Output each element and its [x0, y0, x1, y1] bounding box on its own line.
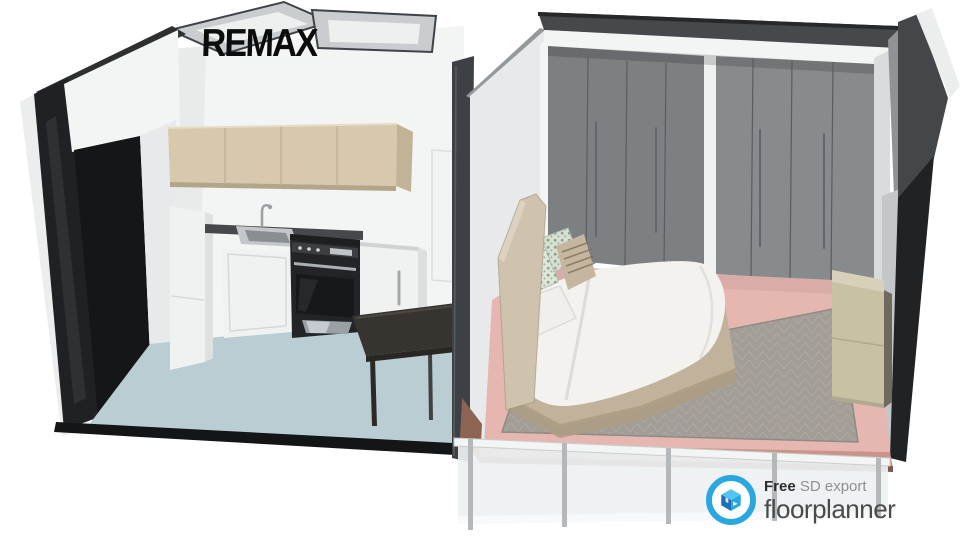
- wall-cabinets: [168, 124, 413, 192]
- kitchen-sink: [236, 226, 298, 247]
- free-sd-export-label: Free SD export: [764, 479, 895, 494]
- top-room-right-interior: [328, 20, 420, 44]
- apartment-3d-scene: [0, 0, 960, 540]
- wardrobe-divider-frame: [704, 54, 716, 276]
- wardrobe: [540, 42, 876, 284]
- floorplanner-badge: Free SD export floorplanner: [706, 468, 958, 532]
- dresser: [832, 270, 892, 408]
- floorplan-3d-export: REMAX Free SD export floorplanner: [0, 0, 960, 540]
- floorplanner-text: Free SD export floorplanner: [764, 479, 895, 522]
- stove-oven: [290, 234, 360, 338]
- sink-base-cabinet: [222, 248, 292, 338]
- remax-watermark: REMAX: [201, 22, 317, 66]
- wardrobe-right-unit: [714, 56, 874, 284]
- floorplanner-brand-label: floorplanner: [764, 496, 895, 522]
- floorplanner-cube-icon: [706, 475, 756, 525]
